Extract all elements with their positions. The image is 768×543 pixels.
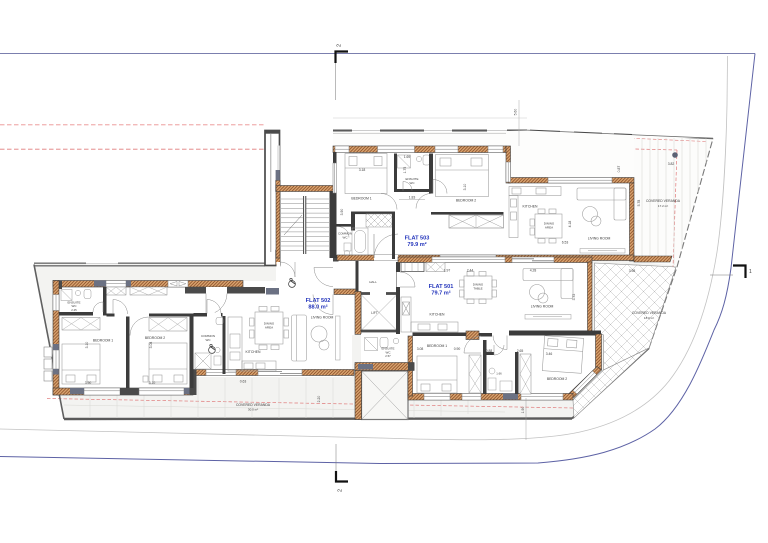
svg-text:3.10: 3.10 (463, 184, 467, 191)
svg-text:2.65: 2.65 (517, 349, 524, 353)
svg-text:79.9 m²: 79.9 m² (407, 241, 426, 248)
svg-text:LIVING ROOM: LIVING ROOM (311, 316, 334, 320)
svg-text:3.90: 3.90 (85, 381, 92, 385)
svg-text:3.90: 3.90 (340, 209, 344, 216)
svg-text:COVERED VERANDA: COVERED VERANDA (646, 199, 681, 203)
svg-text:4.18: 4.18 (568, 221, 572, 228)
svg-text:BEDROOM 1: BEDROOM 1 (351, 197, 371, 201)
svg-text:1.69: 1.69 (404, 155, 411, 159)
svg-text:KITCHEN: KITCHEN (430, 313, 445, 317)
svg-text:2: 2 (338, 489, 344, 492)
svg-text:LIVING ROOM: LIVING ROOM (531, 305, 554, 309)
svg-text:1.97: 1.97 (444, 269, 451, 273)
svg-text:0.87: 0.87 (617, 166, 621, 173)
svg-text:BEDROOM 2: BEDROOM 2 (145, 336, 165, 340)
svg-text:1.90: 1.90 (521, 407, 525, 414)
svg-text:18.0 m²: 18.0 m² (644, 316, 654, 320)
svg-text:30.0 m²: 30.0 m² (248, 408, 258, 412)
svg-text:88.0 m²: 88.0 m² (308, 304, 327, 311)
svg-text:AREA: AREA (265, 325, 273, 329)
svg-text:WC: WC (410, 181, 416, 185)
svg-text:LIVING ROOM: LIVING ROOM (588, 237, 611, 241)
svg-text:LIFT: LIFT (371, 311, 378, 315)
svg-text:0.88: 0.88 (486, 349, 493, 353)
svg-text:3.08: 3.08 (149, 342, 153, 349)
svg-text:COVERED VERANDA: COVERED VERANDA (632, 311, 667, 315)
svg-text:TABLE: TABLE (473, 286, 482, 290)
svg-text:BEDROOM 1: BEDROOM 1 (427, 344, 447, 348)
svg-text:3.82: 3.82 (668, 162, 675, 166)
svg-text:1.66: 1.66 (496, 372, 502, 376)
svg-text:3.10: 3.10 (149, 381, 156, 385)
svg-text:WC: WC (206, 338, 212, 342)
svg-text:1.75: 1.75 (403, 167, 407, 174)
svg-text:2.44: 2.44 (467, 269, 474, 273)
svg-text:2.25: 2.25 (71, 308, 77, 312)
svg-text:3.08: 3.08 (417, 347, 424, 351)
svg-text:FLAT 503: FLAT 503 (405, 236, 430, 242)
svg-text:COVERED VERANDA: COVERED VERANDA (236, 403, 271, 407)
svg-text:BEDROOM 2: BEDROOM 2 (547, 377, 567, 381)
svg-text:2.20: 2.20 (317, 396, 321, 403)
svg-text:5.78: 5.78 (637, 200, 641, 207)
svg-text:FLAT 502: FLAT 502 (306, 298, 331, 304)
svg-text:3.98: 3.98 (629, 269, 636, 273)
svg-text:AREA: AREA (545, 225, 553, 229)
svg-text:KITCHEN: KITCHEN (523, 205, 538, 209)
svg-text:3.18: 3.18 (359, 168, 366, 172)
svg-text:4.28: 4.28 (530, 269, 537, 273)
svg-text:BEDROOM 2: BEDROOM 2 (456, 199, 476, 203)
svg-text:0.63: 0.63 (240, 380, 247, 384)
svg-text:3.72: 3.72 (572, 294, 576, 301)
svg-text:17.2 m²: 17.2 m² (658, 204, 668, 208)
svg-text:3.10: 3.10 (85, 342, 89, 349)
svg-text:2: 2 (337, 44, 343, 47)
svg-text:6.53: 6.53 (562, 241, 569, 245)
svg-text:0.90: 0.90 (454, 347, 461, 351)
svg-text:1: 1 (749, 269, 752, 275)
svg-text:79.7 m²: 79.7 m² (431, 290, 450, 297)
svg-text:BEDROOM 1: BEDROOM 1 (93, 339, 113, 343)
svg-text:1.83: 1.83 (409, 196, 416, 200)
svg-text:2.57: 2.57 (385, 354, 391, 358)
svg-text:3.46: 3.46 (546, 352, 553, 356)
svg-text:5.60: 5.60 (514, 109, 518, 116)
svg-text:FLAT 501: FLAT 501 (429, 284, 454, 290)
svg-text:KITCHEN: KITCHEN (246, 350, 261, 354)
svg-text:HALL: HALL (369, 280, 377, 284)
svg-text:WC: WC (343, 235, 349, 239)
